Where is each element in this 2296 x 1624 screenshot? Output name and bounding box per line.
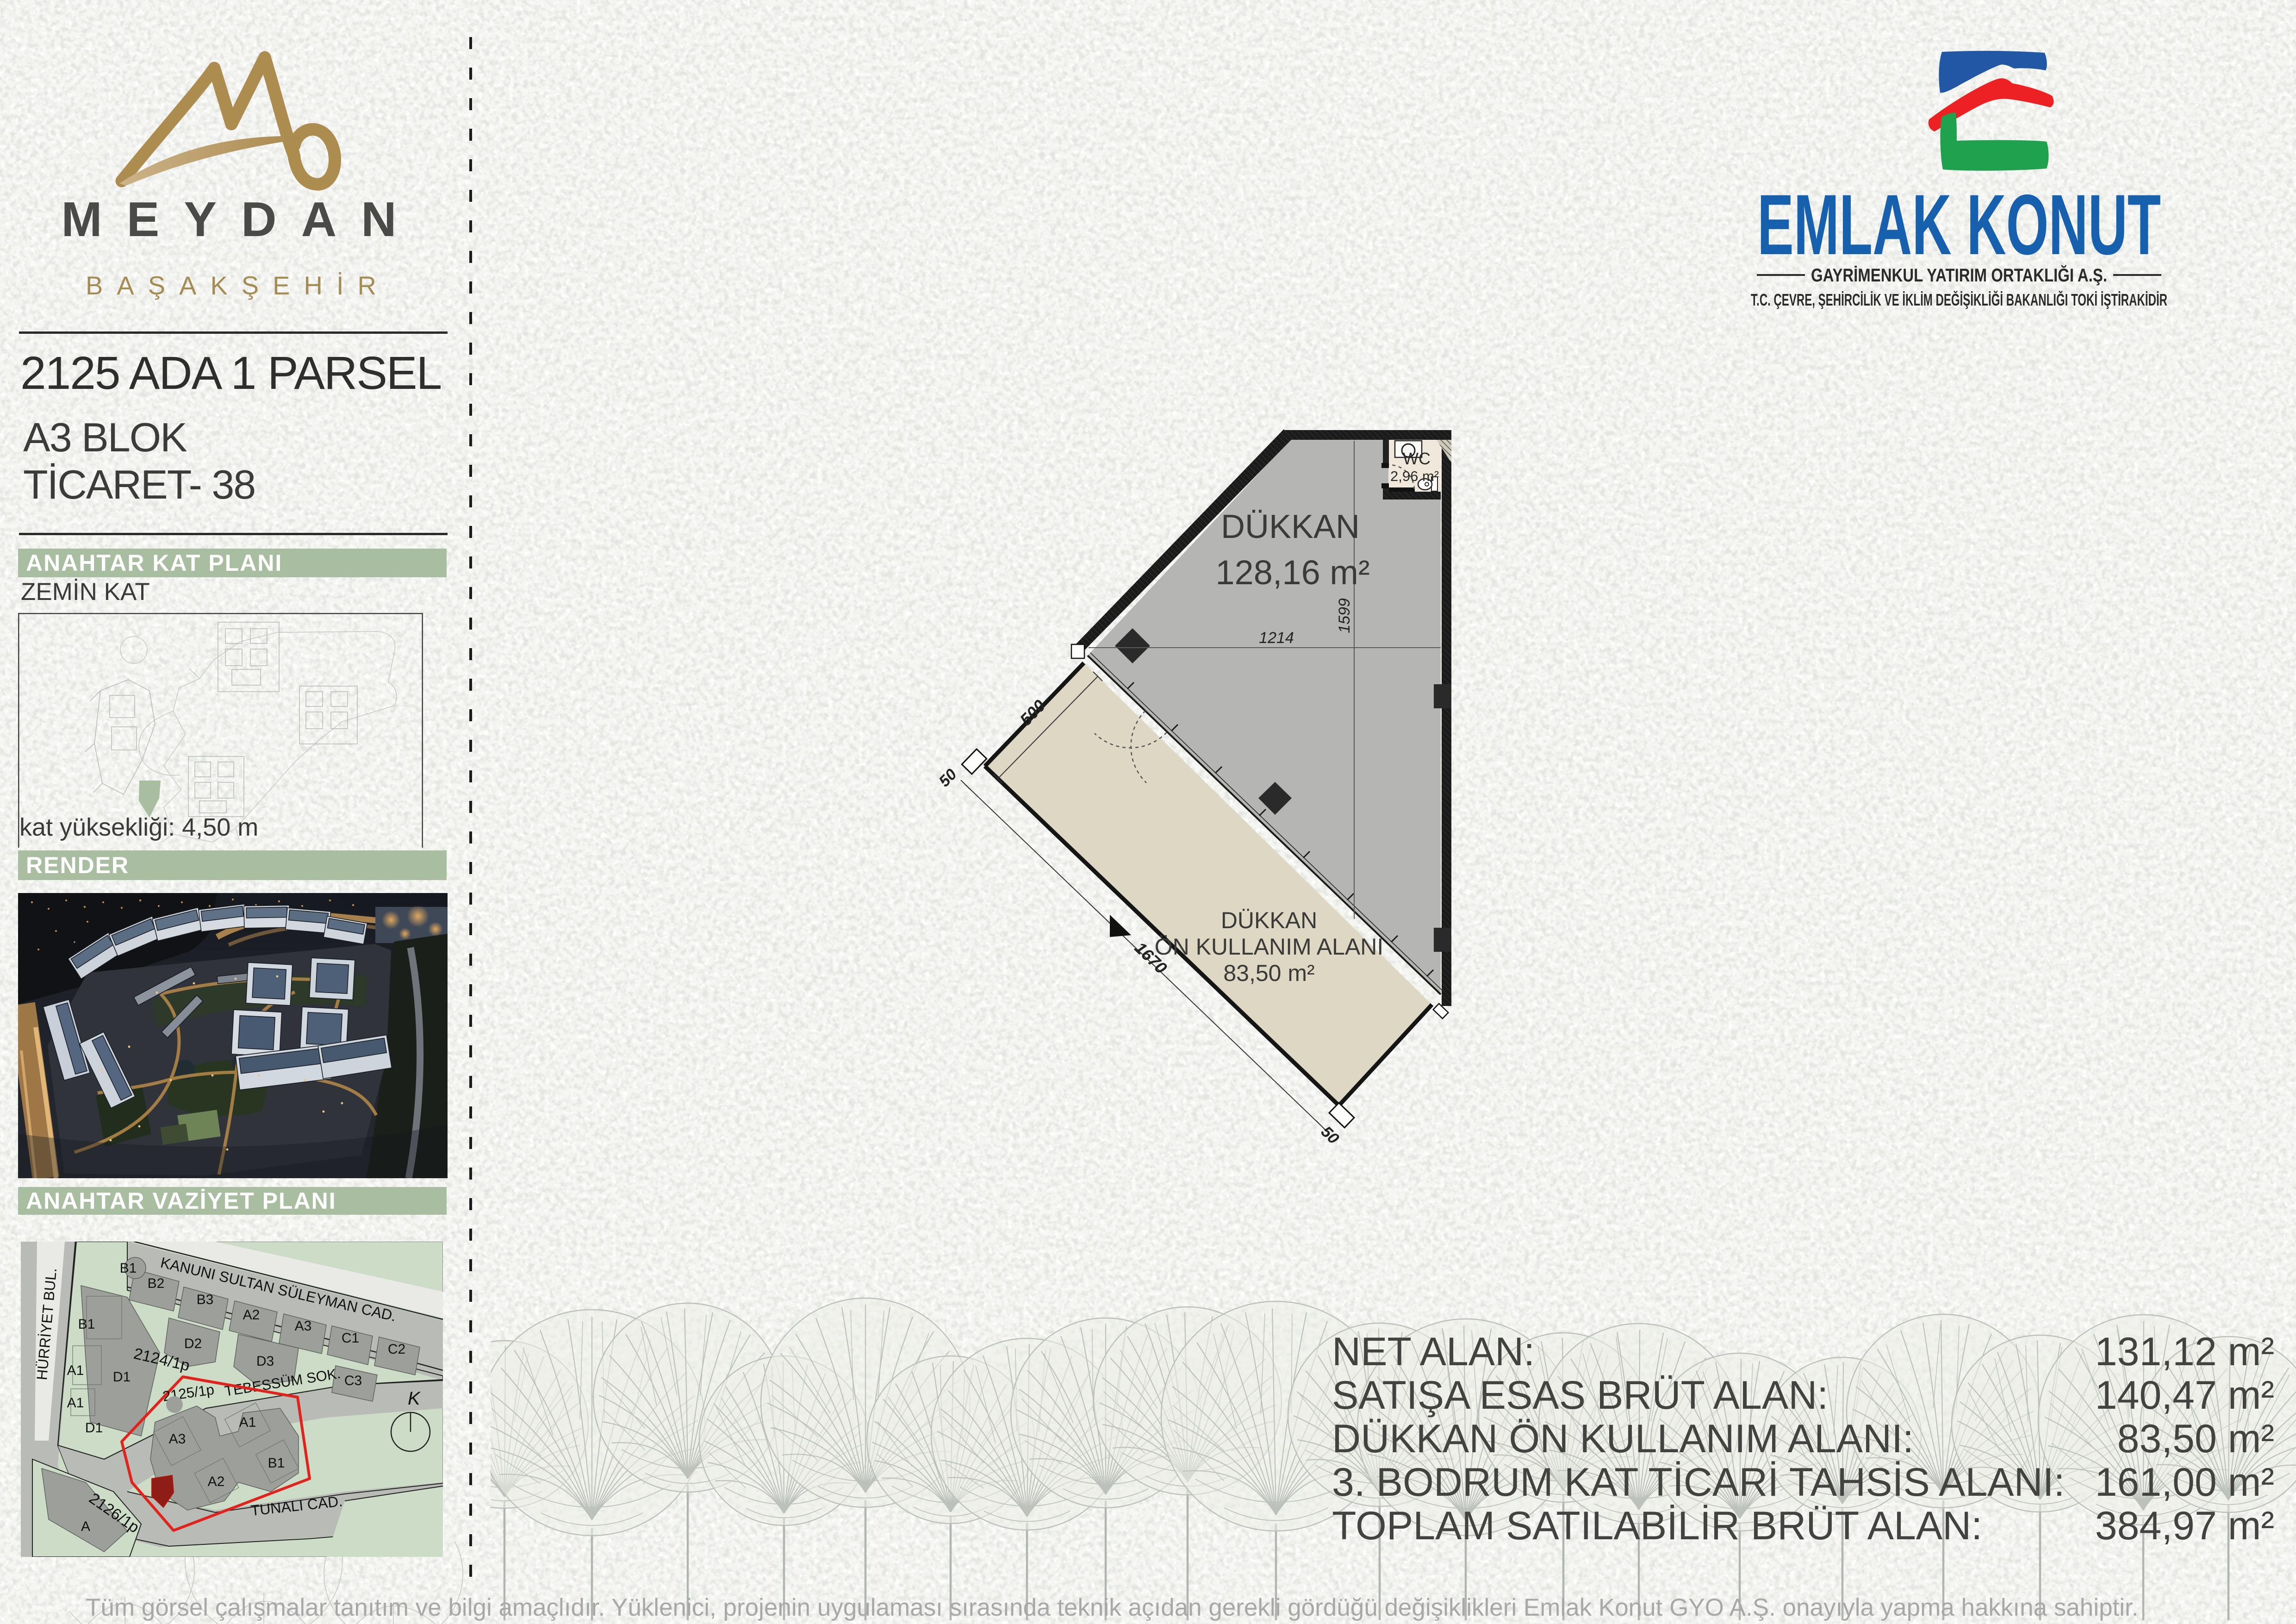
svg-text:B1: B1	[268, 1455, 285, 1471]
svg-text:1599: 1599	[1336, 598, 1353, 633]
svg-text:ÖN KULLANIM ALANI: ÖN KULLANIM ALANI	[1155, 934, 1384, 960]
svg-text:A2: A2	[208, 1474, 225, 1489]
svg-text:50: 50	[935, 765, 960, 790]
svg-text:2,96 m²: 2,96 m²	[1390, 468, 1439, 484]
svg-text:A1: A1	[239, 1415, 256, 1430]
svg-text:DÜKKAN: DÜKKAN	[1221, 508, 1360, 545]
svg-text:T.C. ÇEVRE, ŞEHİRCİLİK VE İKLİ: T.C. ÇEVRE, ŞEHİRCİLİK VE İKLİM DEĞİŞİKL…	[1751, 290, 2167, 309]
svg-text:BAŞAKŞEHİR: BAŞAKŞEHİR	[86, 271, 390, 300]
svg-text:C3: C3	[344, 1373, 362, 1388]
svg-text:B3: B3	[197, 1292, 214, 1307]
svg-text:50: 50	[1318, 1123, 1343, 1148]
svg-text:B1: B1	[120, 1261, 137, 1276]
svg-text:A1: A1	[67, 1395, 84, 1411]
svg-text:A3: A3	[169, 1431, 186, 1447]
svg-text:128,16 m²: 128,16 m²	[1215, 553, 1369, 592]
svg-text:83,50 m²: 83,50 m²	[1223, 960, 1314, 986]
svg-text:MEYDAN: MEYDAN	[61, 192, 421, 247]
svg-text:D3: D3	[256, 1354, 274, 1369]
svg-text:DÜKKAN: DÜKKAN	[1221, 907, 1317, 933]
svg-text:B2: B2	[148, 1276, 165, 1291]
svg-text:1214: 1214	[1259, 629, 1294, 647]
svg-text:A1: A1	[67, 1363, 84, 1378]
svg-text:WC: WC	[1403, 449, 1431, 468]
svg-text:EMLAK KONUT: EMLAK KONUT	[1757, 177, 2161, 273]
svg-text:A3: A3	[295, 1318, 312, 1334]
svg-text:A2: A2	[243, 1307, 260, 1323]
svg-text:D1: D1	[85, 1420, 103, 1436]
svg-text:GAYRİMENKUL YATIRIM ORTAKLIĞI: GAYRİMENKUL YATIRIM ORTAKLIĞI A.Ş.	[1811, 264, 2107, 286]
svg-text:B1: B1	[78, 1317, 95, 1332]
svg-text:A: A	[81, 1519, 90, 1534]
svg-text:D1: D1	[113, 1369, 131, 1385]
svg-text:C2: C2	[388, 1342, 405, 1357]
svg-text:C1: C1	[342, 1330, 359, 1346]
svg-text:D2: D2	[184, 1336, 202, 1351]
svg-text:K: K	[408, 1388, 421, 1409]
